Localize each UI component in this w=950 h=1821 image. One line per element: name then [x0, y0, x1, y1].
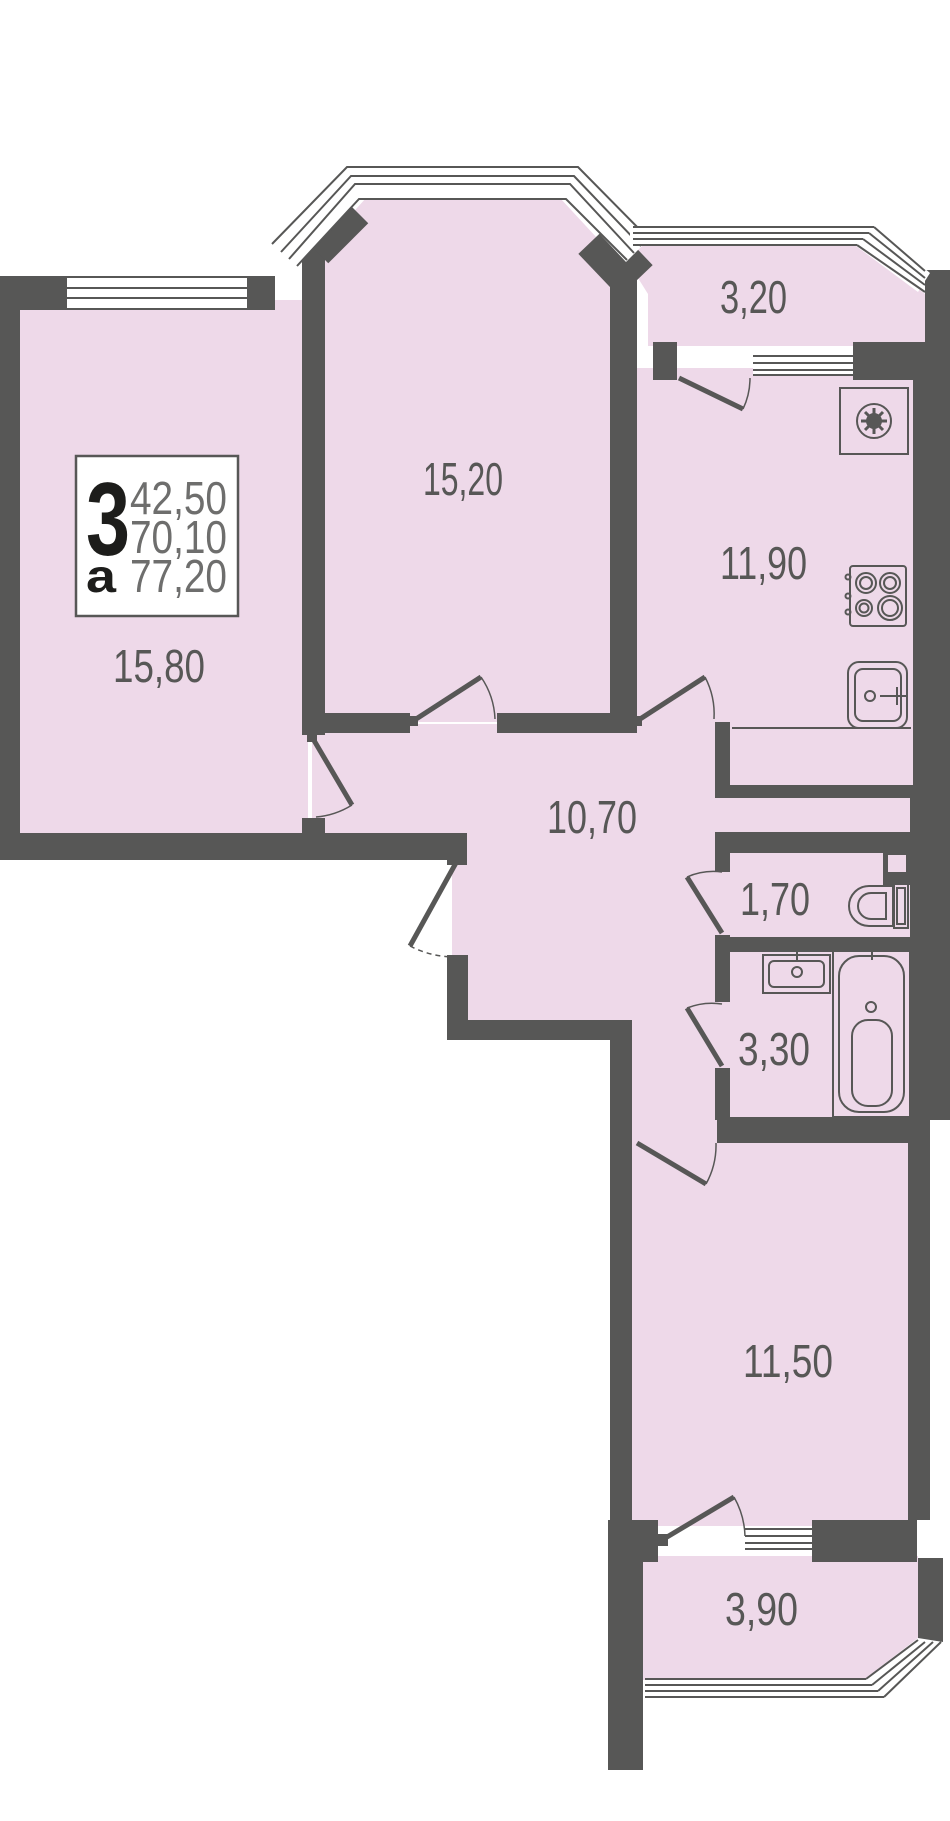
room-fill-hallway	[312, 724, 726, 1136]
room-label-living-room-bottom: 11,50	[743, 1335, 833, 1387]
info-box: 3 а 42,50 70,10 77,20	[76, 456, 238, 616]
entrance-door	[410, 861, 457, 957]
room-label-balcony-bottom: 3,90	[725, 1583, 798, 1635]
room-label-balcony-top: 3,20	[720, 271, 787, 323]
window-kitchen-balcony	[753, 355, 853, 376]
room-fill-duct	[724, 794, 914, 836]
room-label-bathroom: 3,30	[738, 1023, 810, 1075]
room-fill-living-room-bottom	[626, 1136, 914, 1526]
vent-duct-square	[888, 855, 906, 872]
info-area-3: 77,20	[130, 550, 227, 602]
floor-plan: 3 а 42,50 70,10 77,20 3,20 15,20 11,90 1…	[0, 0, 950, 1821]
room-label-wc: 1,70	[740, 873, 810, 925]
info-type-letter: а	[86, 550, 116, 602]
room-label-living-room-left: 15,80	[113, 640, 205, 692]
room-label-hallway: 10,70	[547, 791, 637, 843]
room-label-living-room-top: 15,20	[423, 453, 503, 505]
floor-plan-svg: 3 а 42,50 70,10 77,20 3,20 15,20 11,90 1…	[0, 0, 950, 1816]
window-room-balcony-bottom	[745, 1528, 812, 1550]
window-living-room-left	[67, 276, 247, 310]
room-label-kitchen: 11,90	[720, 537, 807, 589]
